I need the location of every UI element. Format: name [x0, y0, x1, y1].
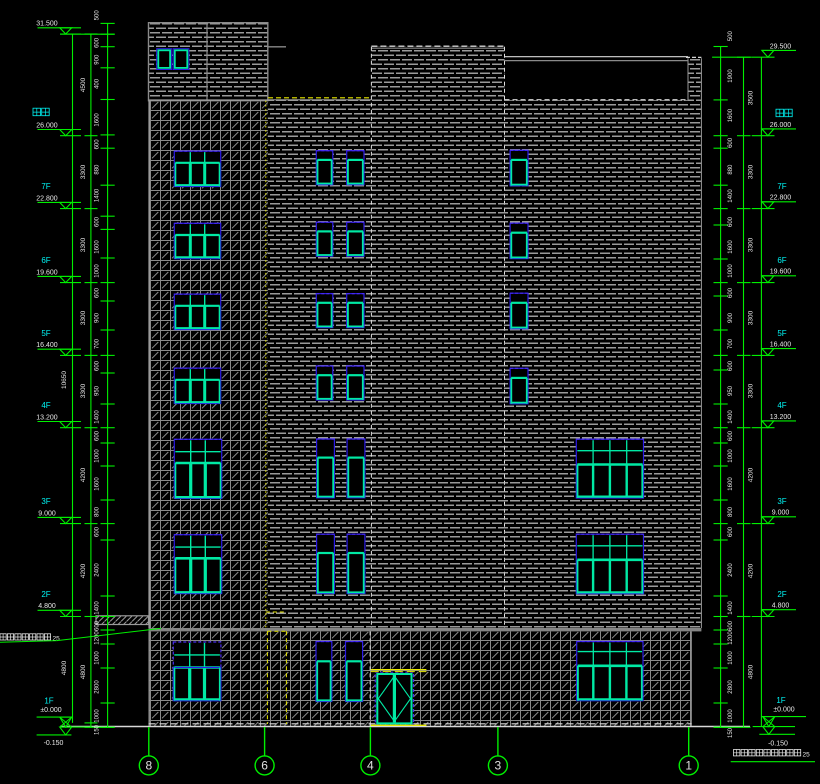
svg-text:600: 600 [728, 526, 734, 537]
svg-text:13.200: 13.200 [770, 414, 792, 421]
svg-text:1000: 1000 [728, 651, 734, 665]
svg-text:1600: 1600 [728, 108, 734, 122]
svg-text:5F: 5F [777, 329, 786, 338]
svg-text:4800: 4800 [80, 664, 87, 679]
svg-text:1900: 1900 [728, 69, 734, 83]
svg-text:2400: 2400 [728, 563, 734, 577]
svg-text:3F: 3F [41, 497, 50, 506]
svg-text:800: 800 [95, 506, 101, 517]
svg-text:2F: 2F [777, 590, 786, 599]
svg-text:1600: 1600 [728, 240, 734, 254]
svg-text:600: 600 [95, 430, 101, 441]
svg-text:25: 25 [53, 636, 61, 643]
svg-text:7F: 7F [777, 182, 786, 191]
svg-text:4F: 4F [777, 401, 786, 410]
svg-text:1200: 1200 [95, 631, 101, 645]
svg-text:4200: 4200 [80, 467, 87, 482]
svg-text:1400: 1400 [728, 410, 734, 424]
svg-text:150: 150 [95, 724, 101, 735]
svg-text:1400: 1400 [95, 601, 101, 615]
svg-text:3300: 3300 [748, 310, 755, 325]
svg-text:950: 950 [95, 385, 101, 396]
svg-text:5F: 5F [41, 329, 50, 338]
svg-text:1000: 1000 [728, 264, 734, 278]
svg-text:1: 1 [685, 759, 692, 773]
svg-text:2F: 2F [41, 590, 50, 599]
svg-text:600: 600 [95, 139, 101, 150]
svg-text:19.600: 19.600 [770, 269, 792, 276]
svg-text:8: 8 [145, 759, 152, 773]
svg-text:4800: 4800 [748, 664, 755, 679]
svg-text:4200: 4200 [80, 563, 87, 578]
svg-text:3300: 3300 [80, 237, 87, 252]
svg-text:3300: 3300 [80, 164, 87, 179]
svg-text:3300: 3300 [80, 310, 87, 325]
svg-text:31.500: 31.500 [36, 21, 58, 28]
svg-text:16.400: 16.400 [770, 342, 792, 349]
svg-text:22.800: 22.800 [770, 195, 792, 202]
svg-text:1600: 1600 [95, 113, 101, 127]
svg-text:600: 600 [728, 287, 734, 298]
svg-text:3300: 3300 [748, 164, 755, 179]
svg-text:19.600: 19.600 [36, 269, 58, 276]
svg-text:1400: 1400 [95, 410, 101, 424]
svg-text:±0.000: ±0.000 [40, 707, 61, 714]
svg-text:3300: 3300 [80, 383, 87, 398]
svg-text:1000: 1000 [95, 449, 101, 463]
svg-text:2800: 2800 [728, 680, 734, 694]
svg-text:1000: 1000 [728, 709, 734, 723]
svg-text:13.200: 13.200 [36, 414, 58, 421]
svg-text:1000: 1000 [95, 709, 101, 723]
svg-text:7F: 7F [41, 182, 50, 191]
svg-text:600: 600 [728, 216, 734, 227]
svg-text:4: 4 [367, 759, 374, 773]
svg-text:-0.150: -0.150 [768, 741, 788, 748]
svg-text:500: 500 [95, 10, 101, 21]
svg-text:2800: 2800 [95, 680, 101, 694]
svg-text:600: 600 [95, 37, 101, 48]
svg-text:6: 6 [261, 759, 268, 773]
svg-text:3F: 3F [777, 497, 786, 506]
svg-text:880: 880 [95, 164, 101, 175]
svg-text:950: 950 [728, 385, 734, 396]
svg-text:3: 3 [495, 759, 502, 773]
svg-text:600: 600 [95, 216, 101, 227]
svg-text:1400: 1400 [728, 601, 734, 615]
svg-text:700: 700 [95, 338, 101, 349]
svg-text:900: 900 [95, 312, 101, 323]
svg-text:6F: 6F [41, 256, 50, 265]
svg-text:600: 600 [95, 287, 101, 298]
svg-text:1600: 1600 [95, 477, 101, 491]
svg-text:4.800: 4.800 [772, 603, 790, 610]
svg-text:600: 600 [728, 360, 734, 371]
svg-text:26.000: 26.000 [770, 122, 792, 129]
svg-text:9.000: 9.000 [772, 510, 790, 517]
svg-text:4.800: 4.800 [38, 603, 56, 610]
svg-text:150: 150 [728, 727, 734, 738]
svg-text:4800: 4800 [61, 660, 68, 675]
svg-text:500: 500 [728, 31, 734, 42]
svg-text:3300: 3300 [748, 383, 755, 398]
svg-text:2400: 2400 [95, 563, 101, 577]
svg-text:600: 600 [728, 137, 734, 148]
svg-text:22.800: 22.800 [36, 195, 58, 202]
svg-text:3300: 3300 [748, 237, 755, 252]
svg-text:400: 400 [95, 78, 101, 89]
svg-text:600: 600 [95, 526, 101, 537]
svg-text:600: 600 [95, 620, 101, 631]
svg-text:900: 900 [728, 312, 734, 323]
svg-text:600: 600 [728, 430, 734, 441]
svg-text:1F: 1F [44, 697, 53, 706]
svg-text:1200: 1200 [728, 631, 734, 645]
svg-text:9.000: 9.000 [38, 510, 56, 517]
svg-text:4200: 4200 [748, 467, 755, 482]
svg-text:1000: 1000 [95, 651, 101, 665]
svg-text:16.400: 16.400 [36, 342, 58, 349]
svg-text:1F: 1F [776, 696, 785, 705]
svg-text:1400: 1400 [95, 188, 101, 202]
svg-text:4F: 4F [41, 401, 50, 410]
svg-text:29.500: 29.500 [770, 43, 792, 50]
svg-text:800: 800 [728, 506, 734, 517]
svg-text:±0.000: ±0.000 [773, 706, 794, 713]
svg-text:900: 900 [95, 54, 101, 65]
svg-text:600: 600 [95, 360, 101, 371]
svg-text:700: 700 [728, 338, 734, 349]
svg-text:10650: 10650 [61, 371, 68, 389]
svg-text:6F: 6F [777, 256, 786, 265]
svg-text:25: 25 [803, 752, 811, 759]
svg-text:4500: 4500 [80, 77, 87, 92]
svg-text:880: 880 [728, 164, 734, 175]
svg-text:1000: 1000 [728, 449, 734, 463]
svg-text:-0.150: -0.150 [44, 740, 64, 747]
svg-text:26.000: 26.000 [36, 122, 58, 129]
svg-text:1600: 1600 [728, 477, 734, 491]
svg-text:3500: 3500 [748, 90, 755, 105]
svg-text:1600: 1600 [95, 240, 101, 254]
svg-text:600: 600 [728, 620, 734, 631]
svg-text:1400: 1400 [728, 189, 734, 203]
svg-text:1000: 1000 [95, 264, 101, 278]
svg-text:4200: 4200 [748, 563, 755, 578]
